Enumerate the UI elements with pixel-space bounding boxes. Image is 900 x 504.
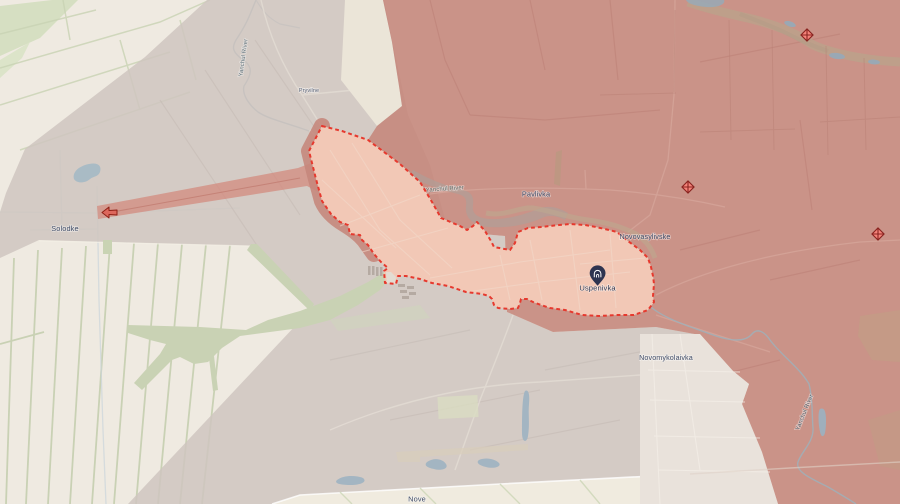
svg-text:Novovasylivske: Novovasylivske bbox=[620, 232, 671, 241]
svg-text:Uspenivka: Uspenivka bbox=[579, 284, 616, 293]
svg-text:Solodke: Solodke bbox=[51, 224, 78, 233]
svg-text:Novomykolaivka: Novomykolaivka bbox=[639, 353, 693, 362]
svg-text:Pryvilne: Pryvilne bbox=[299, 88, 319, 94]
svg-text:Pavlivka: Pavlivka bbox=[522, 190, 551, 199]
svg-text:Nove: Nove bbox=[408, 495, 426, 504]
